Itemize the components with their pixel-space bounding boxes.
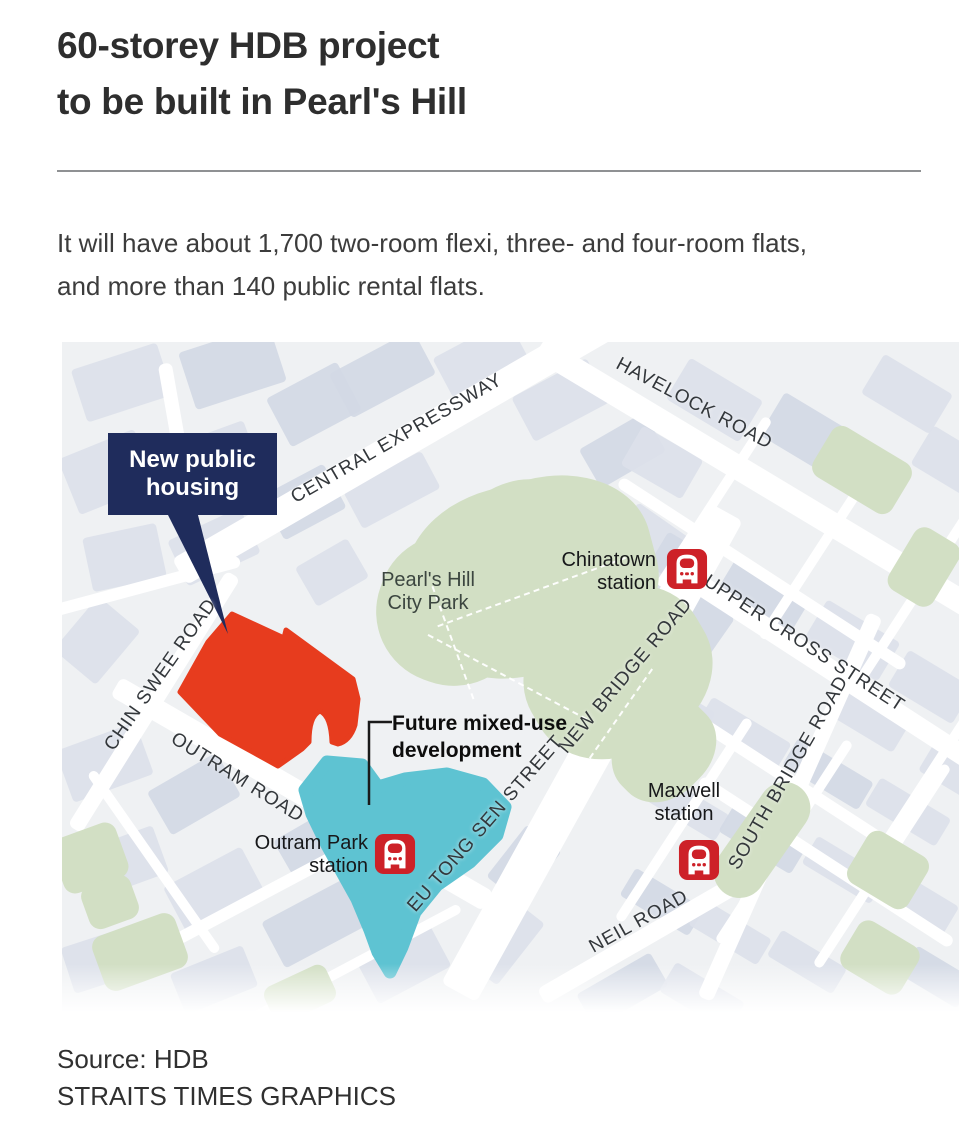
station-maxwell: Maxwell station [614,780,754,826]
mrt-station-icon-maxwell [678,839,720,881]
station-outram-park-line-2: station [228,855,368,878]
map-graphic: New public housing CENTRAL EXPRESSWAY HA… [62,342,959,1012]
station-chinatown-line-1: Chinatown [516,549,656,572]
park-label-line-1: Pearl's Hill [358,569,498,592]
title-line-1: 60-storey HDB project [57,18,467,74]
station-outram-park-line-1: Outram Park [228,832,368,855]
new-housing-callout: New public housing [108,433,277,515]
future-dev-line-2: development [392,737,567,764]
description-line-2: and more than 140 public rental flats. [57,265,807,308]
new-housing-area [180,614,358,766]
station-chinatown-line-2: station [516,572,656,595]
page-title: 60-storey HDB project to be built in Pea… [57,18,467,130]
article-description: It will have about 1,700 two-room flexi,… [57,222,807,308]
station-outram-park: Outram Park station [228,832,368,878]
future-development-label: Future mixed-use development [392,710,567,764]
credit-line: STRAITS TIMES GRAPHICS [57,1078,396,1115]
callout-line-2: housing [108,474,277,502]
header-divider [57,170,921,172]
future-dev-line-1: Future mixed-use [392,710,567,737]
footer: Source: HDB STRAITS TIMES GRAPHICS [57,1041,396,1115]
description-line-1: It will have about 1,700 two-room flexi,… [57,222,807,265]
station-chinatown: Chinatown station [516,549,656,595]
map-bottom-fade [62,964,959,1012]
mrt-station-icon-chinatown [666,548,708,590]
title-line-2: to be built in Pearl's Hill [57,74,467,130]
station-maxwell-line-1: Maxwell [614,780,754,803]
park-label-line-2: City Park [358,592,498,615]
mrt-station-icon-outram-park [374,833,416,875]
park-label: Pearl's Hill City Park [358,569,498,615]
infographic-page: 60-storey HDB project to be built in Pea… [0,0,959,1137]
callout-line-1: New public [108,446,277,474]
source-line: Source: HDB [57,1041,396,1078]
station-maxwell-line-2: station [614,803,754,826]
